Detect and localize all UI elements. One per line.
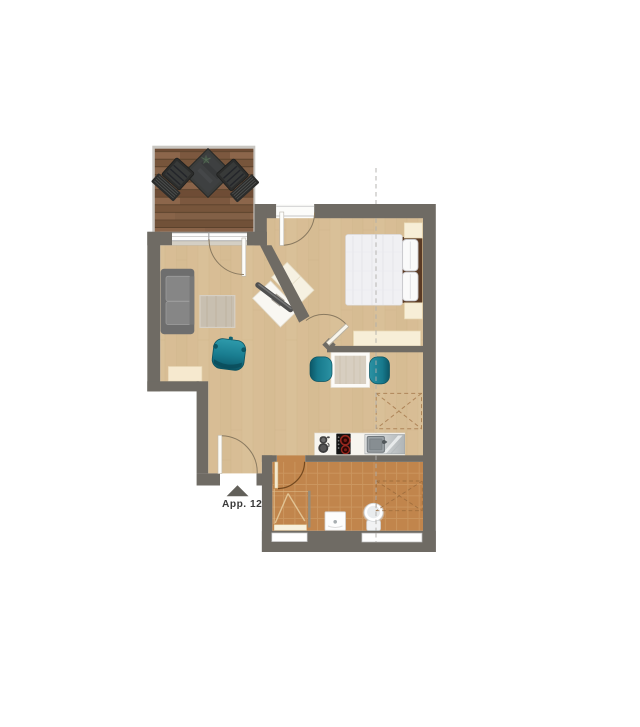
svg-text:App. 12: App. 12 [222, 499, 262, 510]
